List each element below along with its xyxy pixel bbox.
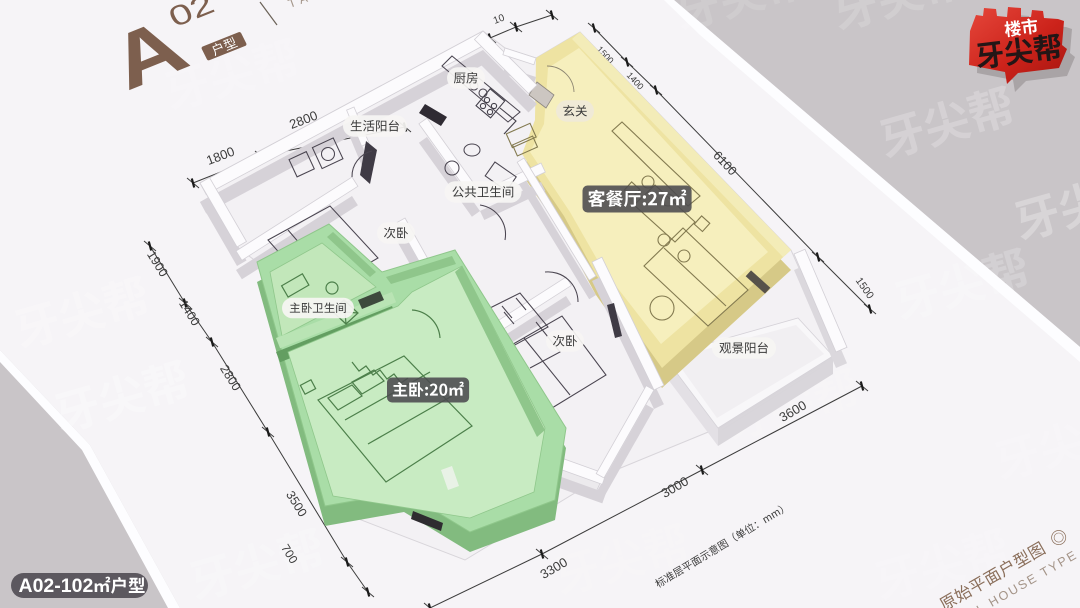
svg-text:A02-102: A02-102 xyxy=(19,575,94,597)
